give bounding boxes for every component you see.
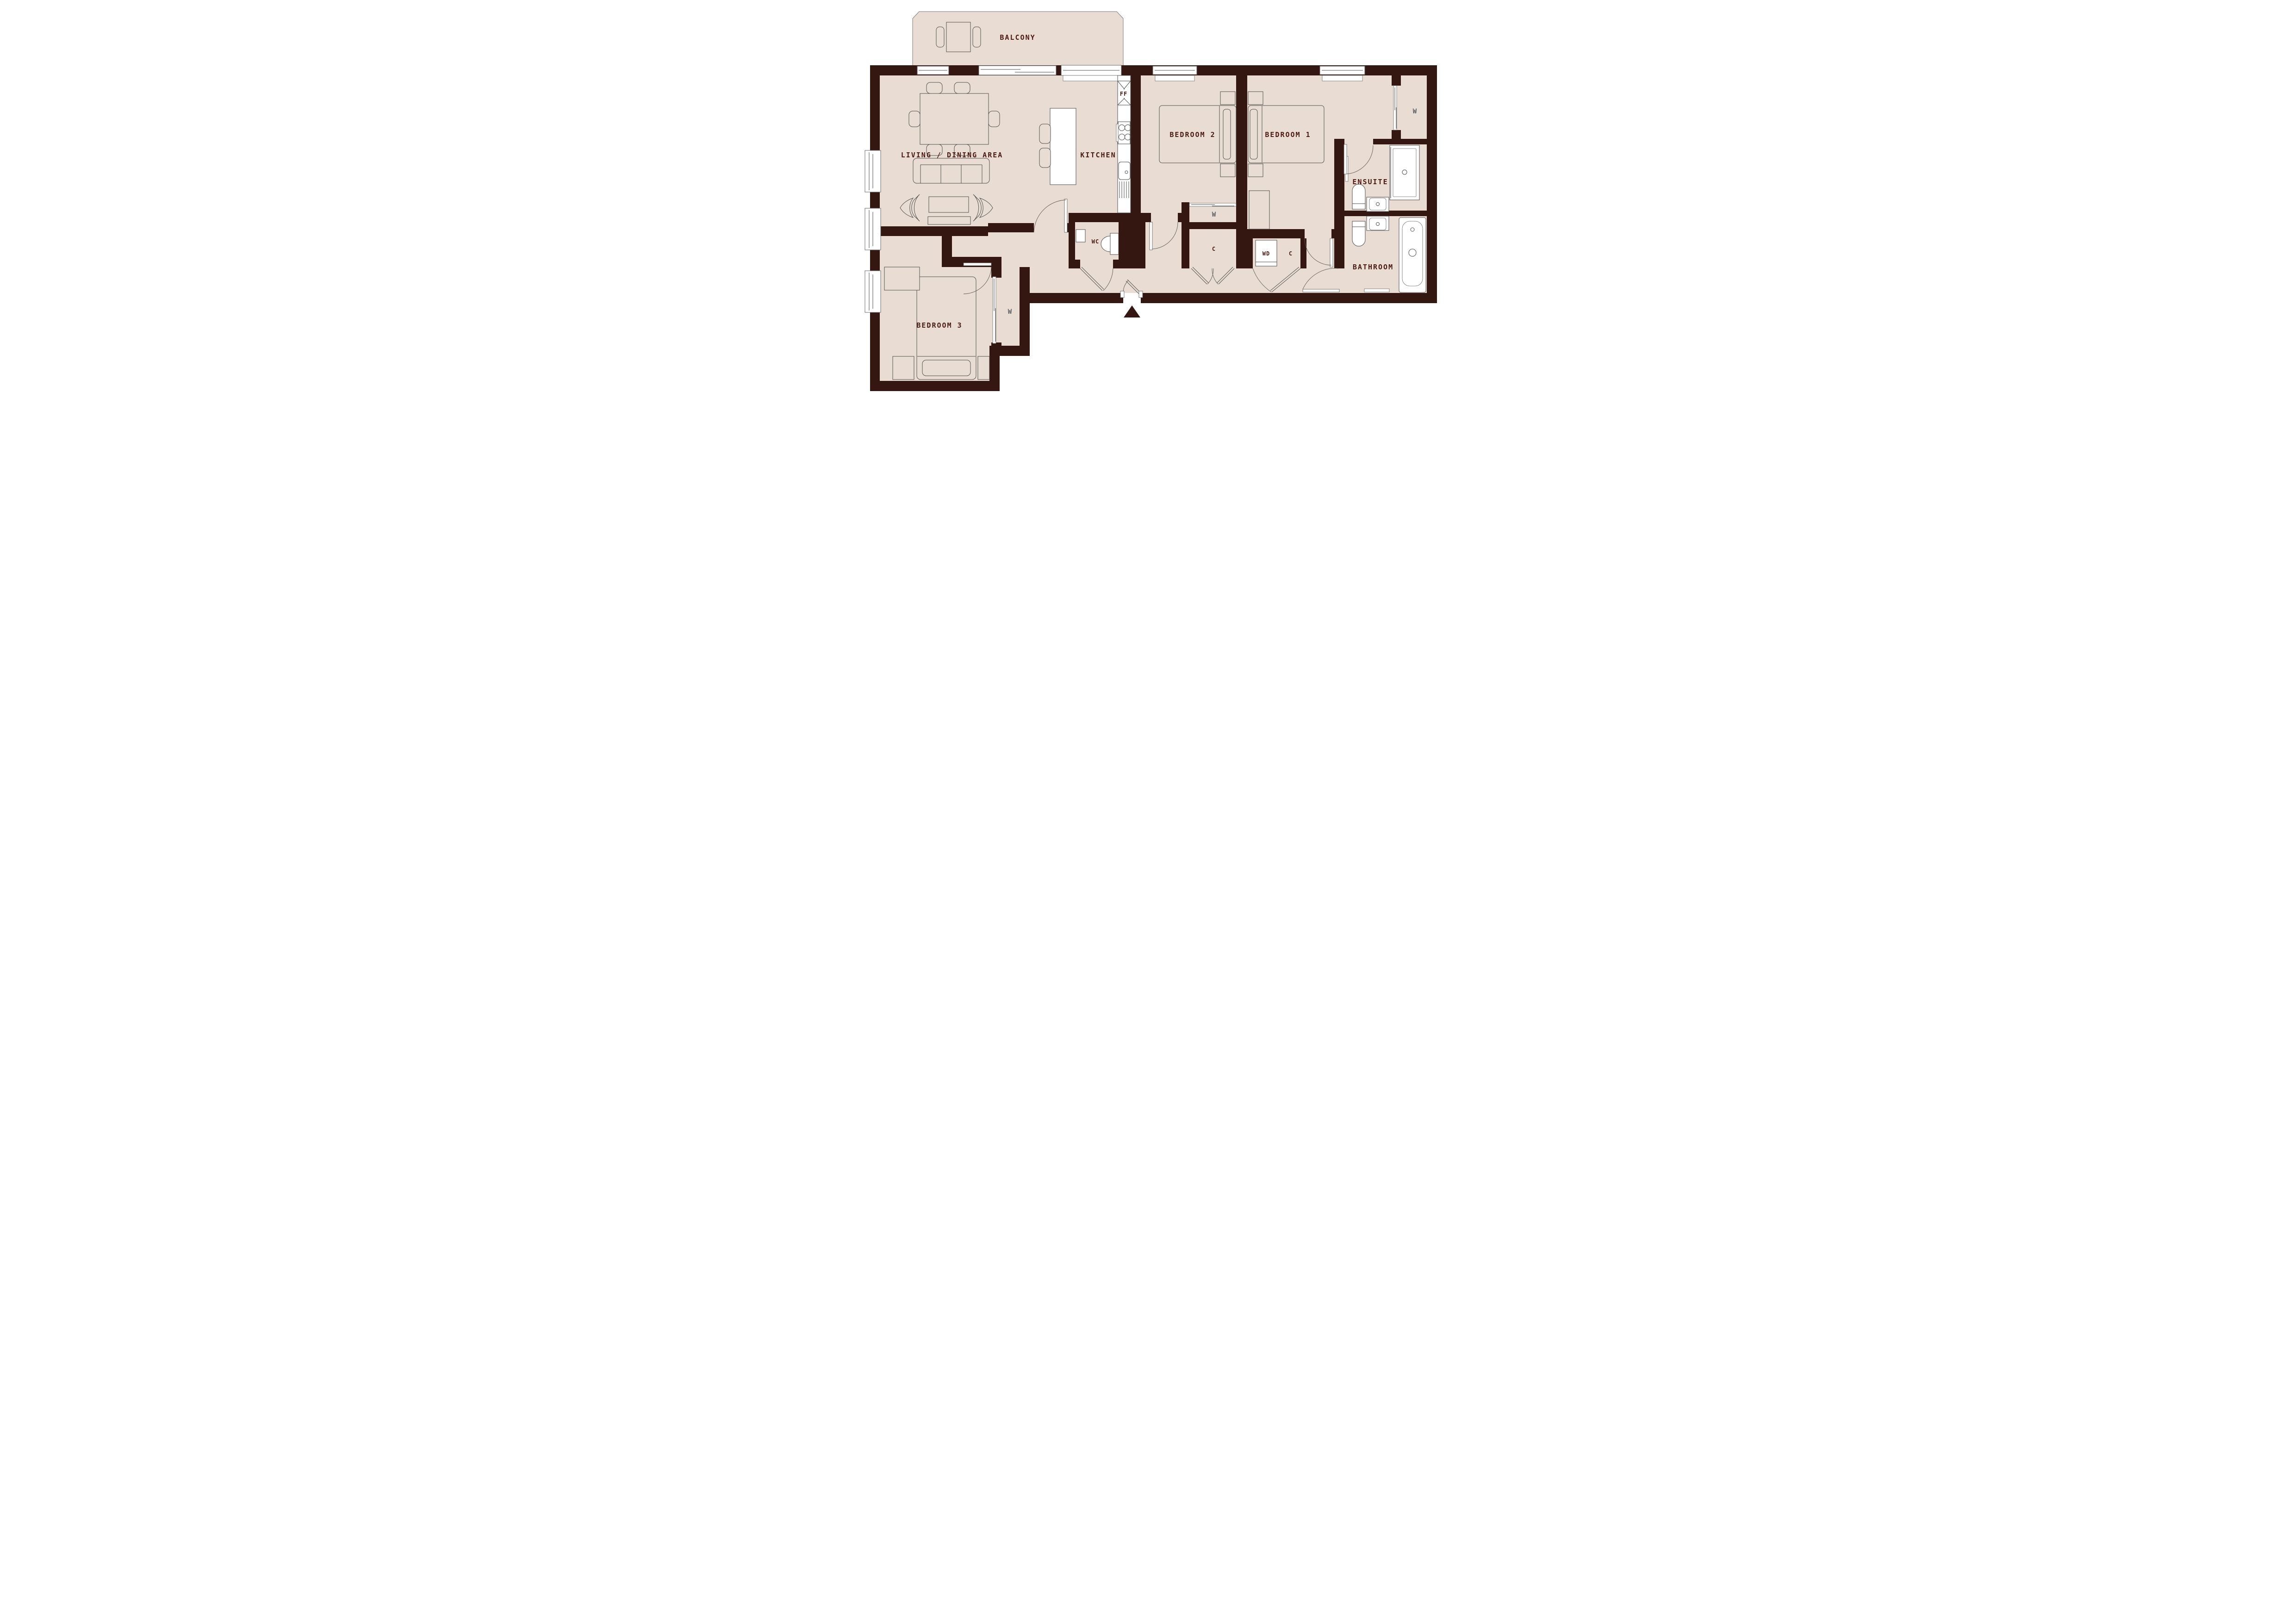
vanity-sink-icon bbox=[1367, 197, 1389, 212]
sliding-door bbox=[993, 277, 996, 343]
cupboard-label: C bbox=[1212, 246, 1216, 252]
cupboard-label: C bbox=[1289, 250, 1293, 257]
bedroom2-label: BEDROOM 2 bbox=[1169, 131, 1215, 139]
floor-plan-svg: BALCONY bbox=[789, 0, 1506, 507]
balcony-chair-icon bbox=[936, 27, 944, 47]
living-window bbox=[865, 150, 881, 192]
bathtub-icon bbox=[1399, 218, 1426, 292]
towel-rail-icon bbox=[1364, 289, 1389, 292]
toilet-icon bbox=[1352, 184, 1365, 209]
balcony-chair-icon bbox=[973, 27, 981, 47]
dining-table bbox=[920, 93, 989, 144]
hob-icon bbox=[1116, 122, 1131, 144]
balcony: BALCONY bbox=[913, 12, 1123, 66]
sofa-icon bbox=[913, 158, 989, 183]
stool-icon bbox=[1039, 148, 1051, 168]
tv-bench bbox=[928, 217, 970, 224]
bedside-table bbox=[1220, 164, 1235, 177]
sliding-door-window bbox=[979, 66, 1056, 75]
kitchen-island bbox=[1050, 108, 1076, 185]
bathroom-label: BATHROOM bbox=[1353, 263, 1393, 271]
shower-icon bbox=[1390, 145, 1419, 200]
bedside-table bbox=[893, 356, 914, 380]
window bbox=[917, 66, 949, 75]
vanity-sink-icon bbox=[1367, 216, 1389, 230]
desk bbox=[884, 267, 920, 290]
sliding-door bbox=[1189, 203, 1236, 206]
stool-icon bbox=[1039, 124, 1051, 143]
dining-chair-icon bbox=[927, 82, 942, 93]
bedroom2-window bbox=[1153, 66, 1197, 81]
floor-plan: BALCONY bbox=[789, 0, 1506, 507]
desk bbox=[1249, 191, 1269, 229]
wc-label: WC bbox=[1092, 238, 1099, 245]
coffee-table bbox=[929, 197, 969, 212]
kitchen-window bbox=[1061, 65, 1121, 81]
living-window bbox=[865, 208, 881, 250]
door-leaf bbox=[1303, 289, 1339, 292]
door-leaf bbox=[1330, 238, 1333, 267]
bedside-table bbox=[1248, 164, 1263, 177]
ensuite-label: ENSUITE bbox=[1352, 178, 1388, 186]
bedroom1-window bbox=[1320, 66, 1365, 81]
dining-chair-icon bbox=[909, 111, 920, 127]
kitchen-label: KITCHEN bbox=[1080, 151, 1116, 159]
toilet-icon bbox=[1352, 221, 1365, 246]
dining-chair-icon bbox=[989, 111, 1000, 127]
dining-chair-icon bbox=[954, 82, 970, 93]
wardrobe-label: W bbox=[1008, 308, 1012, 316]
fridge-freezer-label: FF bbox=[1120, 91, 1127, 97]
balcony-table bbox=[946, 22, 970, 52]
living-dining-label: LIVING / DINING AREA bbox=[901, 151, 1003, 159]
sliding-door bbox=[1393, 86, 1397, 130]
bedroom1-label: BEDROOM 1 bbox=[1265, 131, 1311, 139]
washer-dryer-label: WD bbox=[1263, 250, 1270, 257]
bedside-table bbox=[1220, 92, 1235, 105]
wc-basin-icon bbox=[1076, 230, 1085, 242]
wardrobe-label: W bbox=[1413, 108, 1417, 115]
bedroom3-window bbox=[865, 271, 881, 312]
bedside-table bbox=[1248, 92, 1263, 105]
bedroom3-label: BEDROOM 3 bbox=[916, 321, 962, 330]
pillow-icon bbox=[1250, 109, 1257, 159]
pillow-icon bbox=[1223, 109, 1231, 159]
door-leaf bbox=[1344, 144, 1347, 174]
door-leaf bbox=[1150, 222, 1152, 250]
wardrobe-label: W bbox=[1212, 211, 1216, 218]
balcony-label: BALCONY bbox=[1000, 33, 1035, 42]
door-leaf bbox=[1064, 199, 1067, 232]
pillow-icon bbox=[922, 360, 970, 376]
bedside-table bbox=[978, 356, 989, 380]
door-leaf bbox=[964, 263, 991, 266]
entrance-arrow-icon bbox=[1124, 305, 1140, 317]
